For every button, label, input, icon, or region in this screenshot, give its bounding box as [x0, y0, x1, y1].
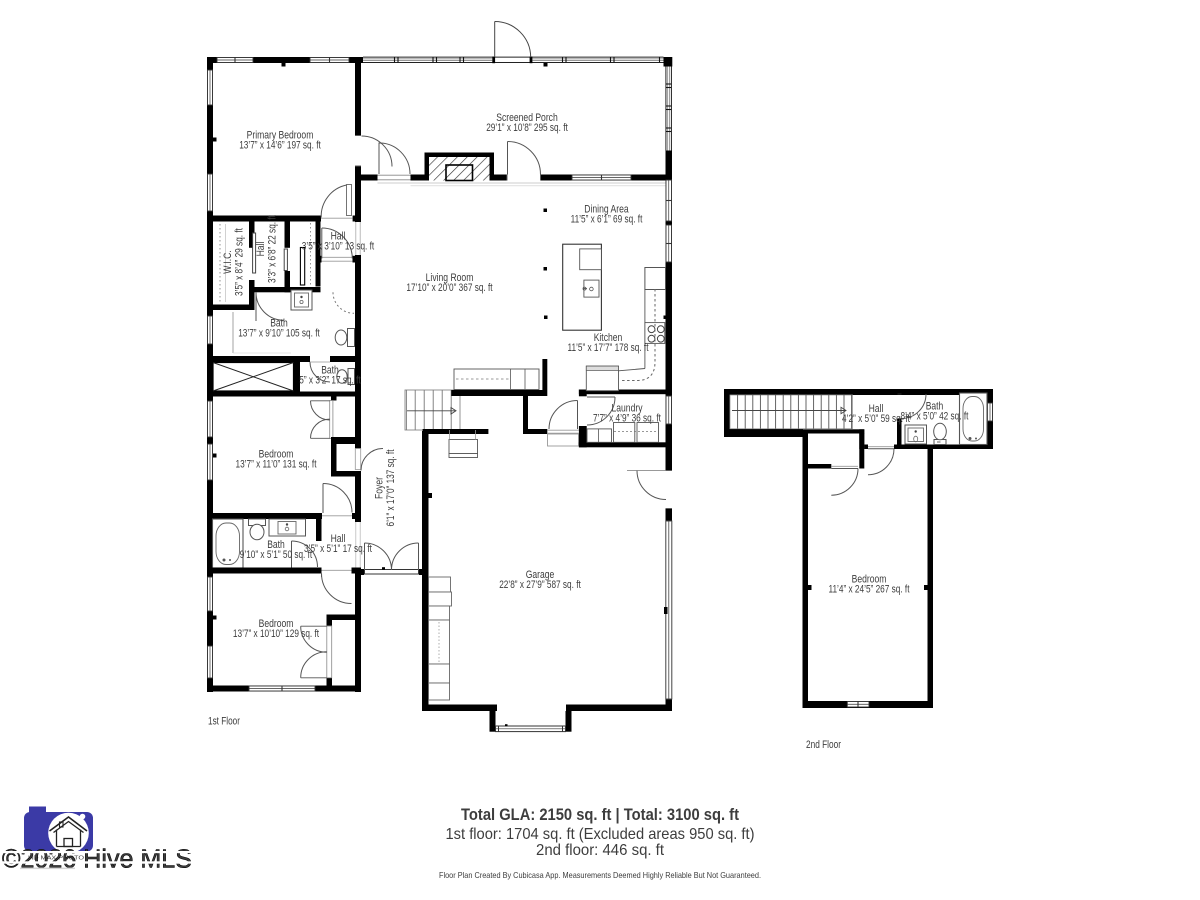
svg-text:11’5” x 6’1” 69 sq. ft: 11’5” x 6’1” 69 sq. ft — [571, 213, 643, 225]
svg-text:Hall: Hall — [255, 242, 267, 257]
svg-text:8’4” x 5’0” 42 sq. ft: 8’4” x 5’0” 42 sq. ft — [901, 410, 969, 422]
svg-text:Foyer: Foyer — [374, 477, 386, 499]
svg-text:11’5” x 17’7” 178 sq. ft: 11’5” x 17’7” 178 sq. ft — [568, 342, 649, 354]
svg-text:2nd Floor: 2nd Floor — [806, 739, 841, 751]
svg-text:3’5” x 5’1” 17 sq. ft: 3’5” x 5’1” 17 sq. ft — [304, 543, 372, 555]
svg-text:13’7” x 11’0” 131 sq. ft: 13’7” x 11’0” 131 sq. ft — [236, 458, 317, 470]
svg-text:3’5” x 3’10” 13 sq. ft: 3’5” x 3’10” 13 sq. ft — [302, 240, 374, 252]
svg-text:13’7” x 14’6” 197 sq. ft: 13’7” x 14’6” 197 sq. ft — [239, 139, 321, 151]
svg-text:13’7” x 9’10” 105 sq. ft: 13’7” x 9’10” 105 sq. ft — [238, 327, 320, 339]
svg-text:17’10” x 20’0” 367 sq. ft: 17’10” x 20’0” 367 sq. ft — [406, 282, 492, 294]
svg-text:1st Floor: 1st Floor — [208, 716, 240, 728]
svg-text:6’1” x 17’0” 137 sq. ft: 6’1” x 17’0” 137 sq. ft — [385, 450, 397, 527]
svg-text:9’10” x 5’1” 50 sq. ft: 9’10” x 5’1” 50 sq. ft — [240, 549, 312, 561]
svg-text:7’7” x 4’9” 36 sq. ft: 7’7” x 4’9” 36 sq. ft — [593, 412, 661, 424]
svg-text:W.I.C.: W.I.C. — [222, 250, 234, 273]
svg-text:3’5” x 8’4” 29 sq. ft: 3’5” x 8’4” 29 sq. ft — [234, 228, 246, 296]
svg-text:©2026 Hive MLS: ©2026 Hive MLS — [2, 846, 192, 874]
svg-text:13’7” x 10’10” 129 sq. ft: 13’7” x 10’10” 129 sq. ft — [233, 628, 319, 640]
svg-text:29’1” x 10’8” 295 sq. ft: 29’1” x 10’8” 295 sq. ft — [486, 122, 568, 134]
svg-text:22’8” x 27’9” 587 sq. ft: 22’8” x 27’9” 587 sq. ft — [499, 579, 581, 591]
svg-text:Total GLA: 2150 sq. ft | Total: Total GLA: 2150 sq. ft | Total: 3100 sq.… — [461, 805, 739, 824]
svg-text:5” x 3’2” 17 sq. ft: 5” x 3’2” 17 sq. ft — [299, 374, 360, 386]
svg-text:3’3” x 6’8” 22 sq. ft: 3’3” x 6’8” 22 sq. ft — [267, 215, 279, 283]
svg-text:Floor Plan Created By Cubicasa: Floor Plan Created By Cubicasa App. Meas… — [439, 870, 761, 880]
svg-text:11’4” x 24’5” 267 sq. ft: 11’4” x 24’5” 267 sq. ft — [829, 583, 910, 595]
svg-text:2nd floor: 446 sq. ft: 2nd floor: 446 sq. ft — [536, 842, 665, 859]
svg-text:1st floor: 1704 sq. ft (Exclud: 1st floor: 1704 sq. ft (Excluded areas 9… — [446, 826, 755, 843]
